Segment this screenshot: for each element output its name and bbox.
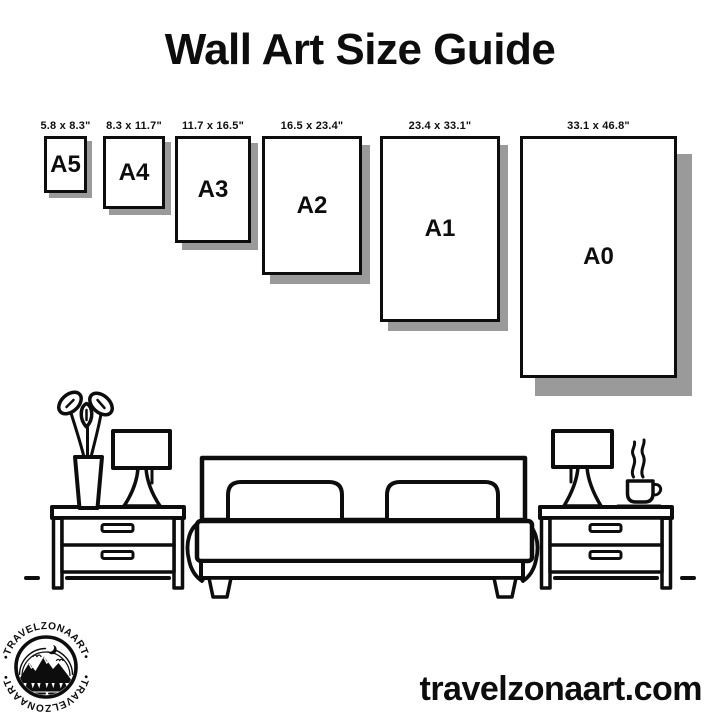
paper-a0: 33.1 x 46.8" A0 bbox=[520, 136, 677, 378]
paper-a5: 5.8 x 8.3" A5 bbox=[44, 136, 87, 193]
table-lamp-left-icon bbox=[113, 431, 170, 506]
nightstand-right-icon bbox=[540, 507, 672, 588]
paper-a4-dims-label: 8.3 x 11.7" bbox=[106, 120, 162, 132]
paper-a3-dims-label: 11.7 x 16.5" bbox=[182, 120, 244, 132]
brand-logo: •TRAVELZONAART• •TRAVELZONAART• bbox=[0, 617, 96, 719]
paper-a2: 16.5 x 23.4" A2 bbox=[262, 136, 362, 275]
coffee-cup-icon bbox=[618, 440, 661, 507]
page-title: Wall Art Size Guide bbox=[0, 28, 720, 72]
paper-a3-code-label: A3 bbox=[198, 178, 229, 202]
wall-art-size-guide: Wall Art Size Guide 5.8 x 8.3" A5 8.3 x … bbox=[0, 0, 720, 720]
double-bed-icon bbox=[188, 458, 538, 597]
table-lamp-right-icon bbox=[553, 431, 612, 506]
paper-a5-dims-label: 5.8 x 8.3" bbox=[40, 120, 90, 132]
paper-a4-code-label: A4 bbox=[119, 161, 150, 185]
paper-a1: 23.4 x 33.1" A1 bbox=[380, 136, 500, 322]
paper-a1-dims-label: 23.4 x 33.1" bbox=[409, 120, 472, 132]
paper-a1-code-label: A1 bbox=[425, 217, 456, 241]
nightstand-left-icon bbox=[52, 507, 184, 588]
paper-a0-code-label: A0 bbox=[583, 245, 614, 269]
paper-a5-code-label: A5 bbox=[50, 153, 81, 177]
paper-a4: 8.3 x 11.7" A4 bbox=[103, 136, 165, 209]
website-text: travelzonaart.com bbox=[420, 672, 703, 706]
paper-a2-dims-label: 16.5 x 23.4" bbox=[281, 120, 344, 132]
paper-a0-dims-label: 33.1 x 46.8" bbox=[567, 120, 630, 132]
plant-vase-icon bbox=[55, 388, 117, 508]
bedroom-illustration bbox=[0, 380, 720, 610]
paper-a2-code-label: A2 bbox=[297, 194, 328, 218]
paper-a3: 11.7 x 16.5" A3 bbox=[175, 136, 251, 243]
